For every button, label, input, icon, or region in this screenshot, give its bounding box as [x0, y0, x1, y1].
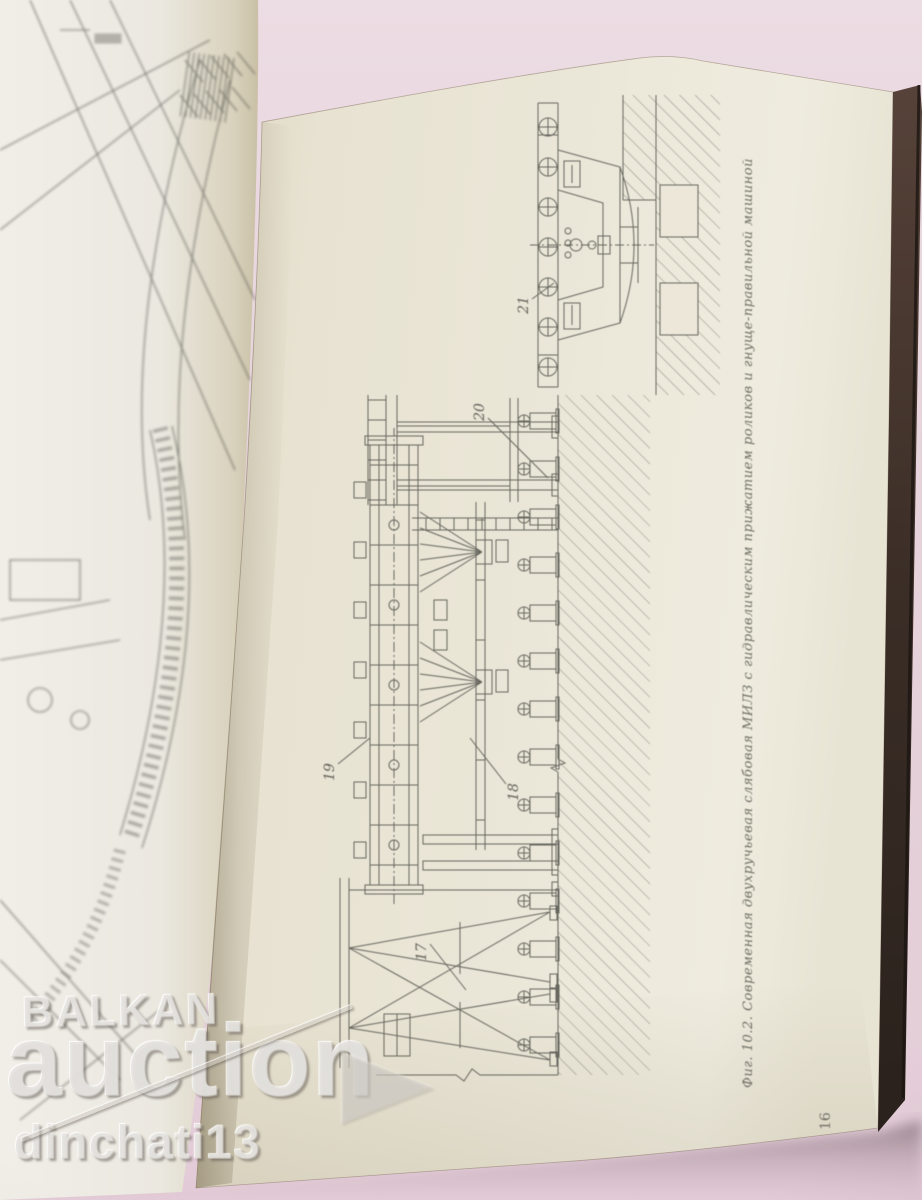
roller-row [539, 118, 557, 376]
book-photo: 21 [0, 0, 922, 1200]
roller-stand-row [518, 409, 559, 1057]
casting-machine-elevation-figure: 17 18 19 20 [322, 395, 650, 1081]
figure-caption: Фиг. 10.2. Современная двухручьевая сляб… [741, 158, 756, 1088]
drive-units [420, 512, 508, 722]
figure-label-21: 21 [516, 296, 532, 315]
watermark-arrow-icon [342, 1052, 434, 1124]
figure-label-20: 20 [472, 403, 488, 422]
figure-label-19: 19 [322, 763, 338, 781]
figure-label-17: 17 [414, 943, 430, 961]
figure-label-18: 18 [506, 783, 522, 801]
page-number: 16 [818, 1112, 834, 1130]
watermark-auction: auction [6, 1010, 376, 1112]
machine-cross-section-figure: 21 [516, 95, 720, 395]
